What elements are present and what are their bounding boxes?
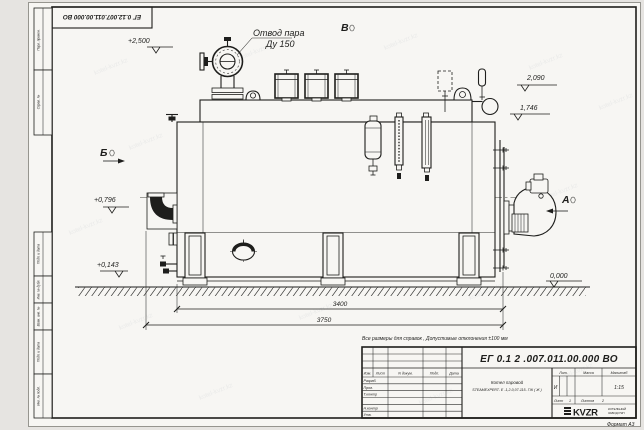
svg-text:kotel-kvzr.kz: kotel-kvzr.kz: [198, 382, 234, 402]
boiler-assembly: [140, 37, 556, 285]
sheets-value: 2: [601, 399, 604, 403]
sheet-value: 1: [569, 399, 571, 403]
svg-text:3750: 3750: [317, 317, 332, 324]
elevation-1746: 1,746: [510, 105, 550, 120]
svg-text:Б: Б: [100, 147, 108, 159]
svg-text:kotel-kvzr.kz: kotel-kvzr.kz: [598, 92, 634, 112]
elevation-2090: 2,090: [517, 75, 557, 91]
stamp-label: Инв. № подл.: [37, 386, 41, 406]
col-header: Подп.: [430, 372, 440, 376]
svg-text:Отвод пара: Отвод пара: [253, 28, 304, 38]
handwheel-icon: [200, 53, 204, 70]
svg-text:+0,143: +0,143: [97, 262, 119, 269]
col-header: Изм.: [364, 372, 372, 376]
svg-text:kotel-kvzr.kz: kotel-kvzr.kz: [383, 32, 419, 52]
svg-text:0,000: 0,000: [550, 273, 568, 280]
svg-text:А: А: [561, 194, 570, 206]
sheet-label: Лист: [553, 399, 563, 403]
safety-valve-2: [305, 70, 328, 101]
svg-text:kotel-kvzr.kz: kotel-kvzr.kz: [68, 217, 104, 237]
sig-row-label: Разраб.: [364, 379, 377, 383]
reference-note: Все размеры для справок , Допустимые отк…: [362, 336, 508, 342]
lit-value: И: [554, 385, 558, 391]
logo-subtext: ЗАВОД РЭП: [608, 411, 625, 415]
stamp-label: Подп. и дата: [37, 342, 41, 362]
steam-outlet-valve: [200, 37, 243, 99]
titleblock-doc-number: ЕГ 0.1 2 .007.011.00.000 ВО: [480, 354, 618, 365]
margin-stamps: Перв. примен. Справ. № Подп. и дата Инв.…: [34, 8, 52, 418]
air-valve: [166, 115, 178, 123]
logo-text: KVZR: [573, 408, 598, 419]
svg-text:kotel-kvzr.kz: kotel-kvzr.kz: [418, 387, 454, 407]
product-name: Котел паровой: [491, 379, 524, 385]
technical-drawing-svg: kotel-kvzr.kz kotel-kvzr.kz kotel-kvzr.k…: [0, 0, 644, 430]
feed-elbow: [147, 193, 177, 229]
stamp-label: Подп. и дата: [37, 244, 41, 264]
view-label-v: В: [341, 22, 354, 34]
lifting-lug: [454, 88, 471, 100]
scale-header: Масштаб: [611, 371, 629, 375]
burner-gearbox: [512, 214, 528, 232]
doc-number-rotated: ЕГ 0.12.007.011.00.000 ВО: [63, 13, 141, 20]
elevation-0143: +0,143: [97, 262, 128, 277]
stamp-label: Взам. инв. №: [37, 306, 41, 326]
sig-row-label: Утв.: [364, 413, 372, 417]
svg-text:kotel-kvzr.kz: kotel-kvzr.kz: [128, 132, 164, 152]
drain-valves: [160, 256, 177, 274]
svg-text:В: В: [341, 22, 349, 34]
drum-lug-left: [246, 91, 260, 100]
svg-text:+0,796: +0,796: [94, 197, 116, 204]
col-header: N докум.: [398, 372, 413, 376]
view-ref-mark: [110, 150, 114, 156]
col-header: Дата: [448, 372, 458, 376]
view-label-b: Б: [100, 147, 125, 164]
sig-row-label: Н.контр: [364, 406, 378, 410]
stamp-label: Перв. примен.: [37, 29, 41, 50]
elevation-0796: +0,796: [94, 197, 129, 213]
elevation-0000: 0,000: [546, 273, 582, 287]
top-left-docnum-box: ЕГ 0.12.007.011.00.000 ВО: [52, 7, 152, 28]
col-header: Лист: [375, 372, 385, 376]
gauge-glass-1: [395, 113, 403, 179]
sig-row-label: Пров.: [364, 386, 373, 390]
svg-text:1,746: 1,746: [520, 105, 538, 112]
gauge-siphon-loop: [472, 99, 498, 115]
svg-text:Ду 150: Ду 150: [265, 39, 294, 49]
burner: [504, 174, 556, 236]
view-ref-mark: [350, 25, 354, 31]
lit-header: Лит.: [558, 371, 567, 375]
svg-text:kotel-kvzr.kz: kotel-kvzr.kz: [528, 52, 564, 72]
elevation-2500: +2,500: [128, 38, 173, 53]
ground: [75, 287, 590, 296]
svg-text:+2,500: +2,500: [128, 38, 150, 45]
svg-text:2,090: 2,090: [526, 75, 545, 82]
stamp-label: Инв. № дубл.: [37, 280, 41, 300]
svg-text:kotel-kvzr.kz: kotel-kvzr.kz: [93, 57, 129, 77]
safety-valve-1: [275, 70, 298, 101]
sheets-label: Листов: [580, 399, 594, 403]
title-block: Изм. Лист N докум. Подп. Дата Разраб. Пр…: [362, 347, 636, 419]
mass-header: Масса: [583, 371, 594, 375]
format-label: Формат А3: [607, 422, 635, 428]
wall-nozzle: [169, 233, 177, 245]
burner-motor: [530, 179, 548, 193]
level-probe: [479, 69, 486, 100]
product-designation: STEAMEXPERT- Е -1,2-0,07-115- ГЖ ( Ж ): [472, 388, 541, 392]
scale-value: 1:15: [614, 385, 624, 391]
support-leg-2: [321, 233, 345, 285]
support-leg-1: [183, 233, 207, 285]
view-ref-mark: [571, 197, 575, 203]
stamp-label: Справ. №: [37, 94, 41, 109]
support-leg-3: [457, 233, 481, 285]
drawing-page: kotel-kvzr.kz kotel-kvzr.kz kotel-kvzr.k…: [0, 0, 644, 430]
arrow-right-icon: [118, 159, 125, 164]
safety-valve-3: [335, 70, 358, 101]
sig-row-label: Т.контр: [364, 393, 378, 397]
kvzr-logo: KVZR КОТЕЛЬНЫЙ ЗАВОД РЭП: [564, 407, 626, 419]
svg-text:3400: 3400: [333, 301, 348, 308]
